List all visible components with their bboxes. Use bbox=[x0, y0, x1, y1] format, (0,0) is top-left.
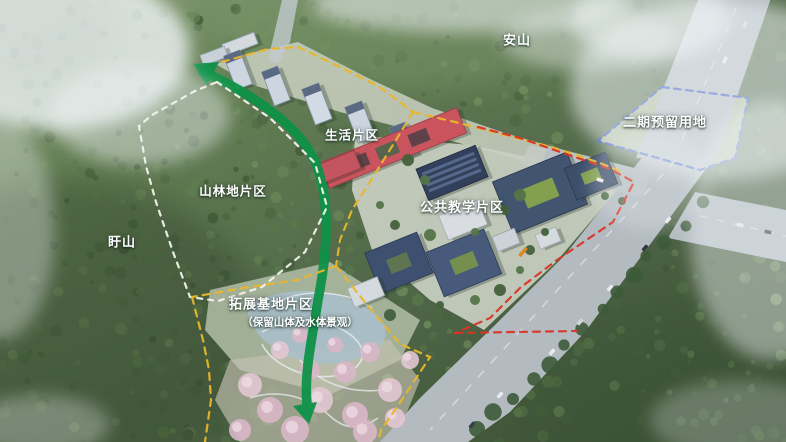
campus-master-plan-canvas: 安山 二期预留用地 生活片区 山林地片区 盱山 公共教学片区 拓展基地片区 （保… bbox=[0, 0, 786, 442]
site-plan-rendering bbox=[0, 0, 786, 442]
